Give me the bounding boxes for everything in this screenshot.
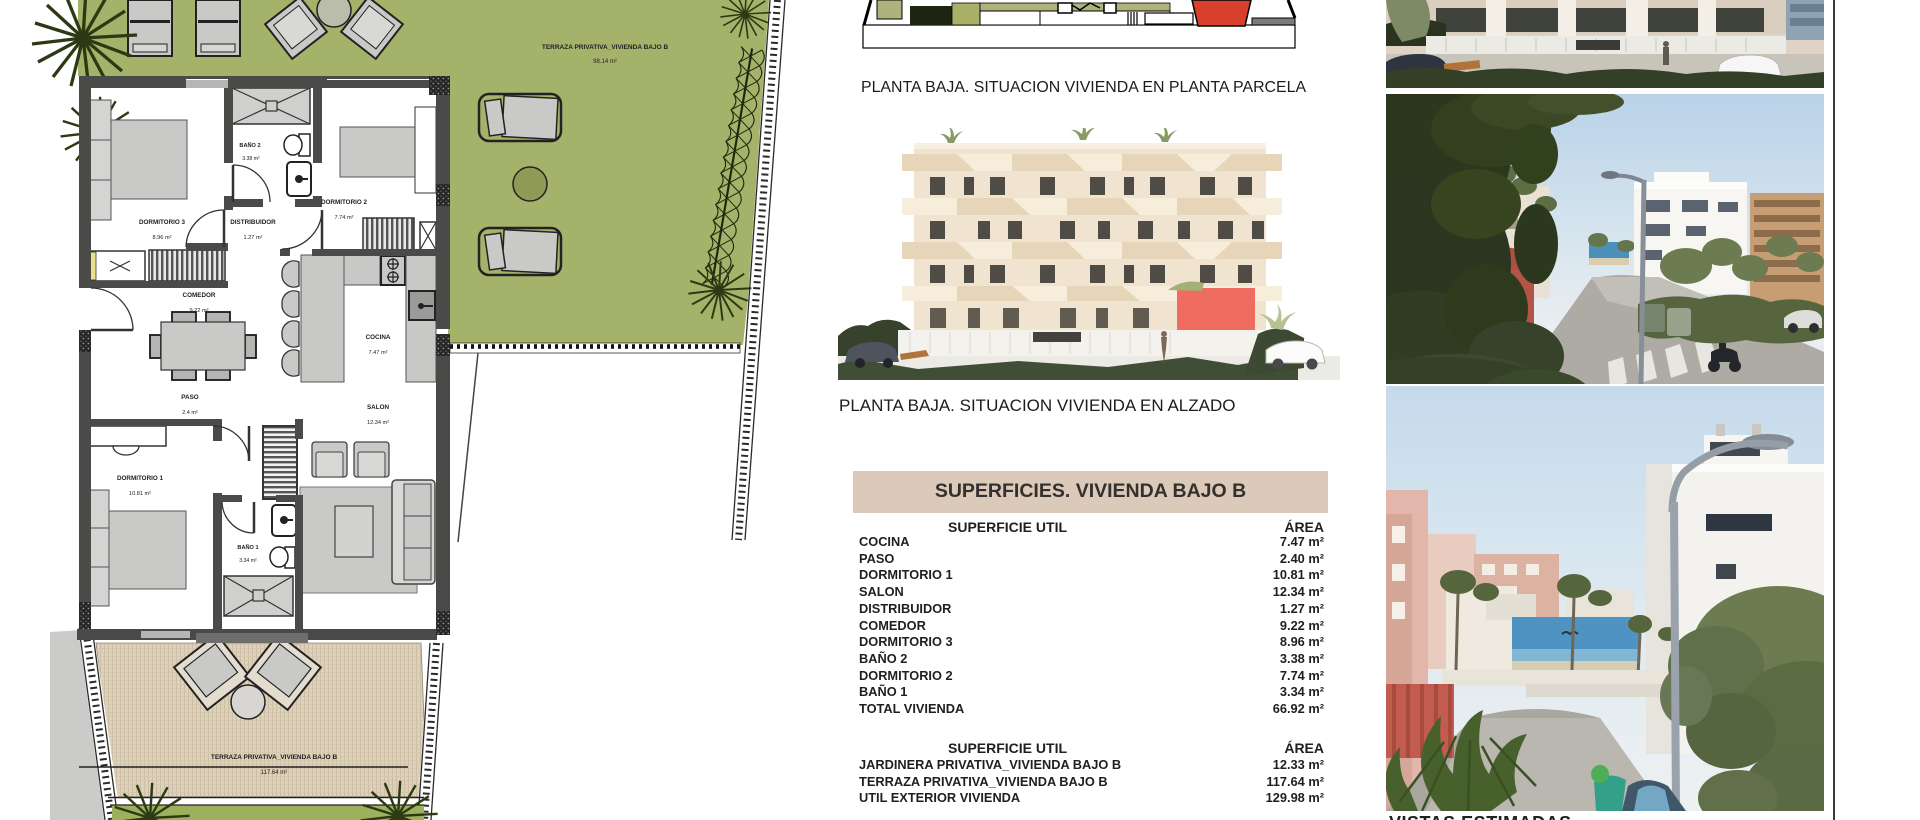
svg-text:1.27 m²: 1.27 m² — [244, 235, 263, 241]
svg-text:BAÑO 1: BAÑO 1 — [237, 544, 258, 551]
svg-text:8.96 m²: 8.96 m² — [153, 235, 172, 241]
svg-text:BAÑO 2: BAÑO 2 — [239, 142, 260, 149]
svg-text:98.14 m²: 98.14 m² — [593, 59, 617, 65]
svg-text:3.38 m²: 3.38 m² — [242, 156, 260, 162]
svg-text:TERRAZA PRIVATIVA_VIVIENDA BAJ: TERRAZA PRIVATIVA_VIVIENDA BAJO B — [211, 754, 338, 761]
svg-text:COMEDOR: COMEDOR — [183, 292, 216, 299]
svg-text:DORMITORIO 3: DORMITORIO 3 — [139, 219, 186, 226]
svg-text:TERRAZA PRIVATIVA_VIVIENDA BAJ: TERRAZA PRIVATIVA_VIVIENDA BAJO B — [542, 44, 669, 51]
svg-text:9.22 m²: 9.22 m² — [190, 308, 209, 314]
svg-text:DORMITORIO 1: DORMITORIO 1 — [117, 475, 164, 482]
svg-text:PASO: PASO — [181, 394, 198, 401]
svg-text:7.47 m²: 7.47 m² — [369, 350, 388, 356]
svg-text:2.4 m²: 2.4 m² — [182, 410, 198, 416]
svg-text:7.74 m²: 7.74 m² — [335, 215, 354, 221]
svg-text:117.64 m²: 117.64 m² — [261, 770, 288, 776]
svg-text:3.34 m²: 3.34 m² — [239, 558, 257, 564]
svg-text:DISTRIBUIDOR: DISTRIBUIDOR — [230, 219, 276, 226]
svg-text:10.81 m²: 10.81 m² — [129, 491, 151, 497]
svg-text:DORMITORIO 2: DORMITORIO 2 — [321, 199, 368, 206]
svg-text:COCINA: COCINA — [366, 334, 391, 341]
svg-text:12.34 m²: 12.34 m² — [367, 420, 389, 426]
svg-text:SALON: SALON — [367, 404, 389, 411]
